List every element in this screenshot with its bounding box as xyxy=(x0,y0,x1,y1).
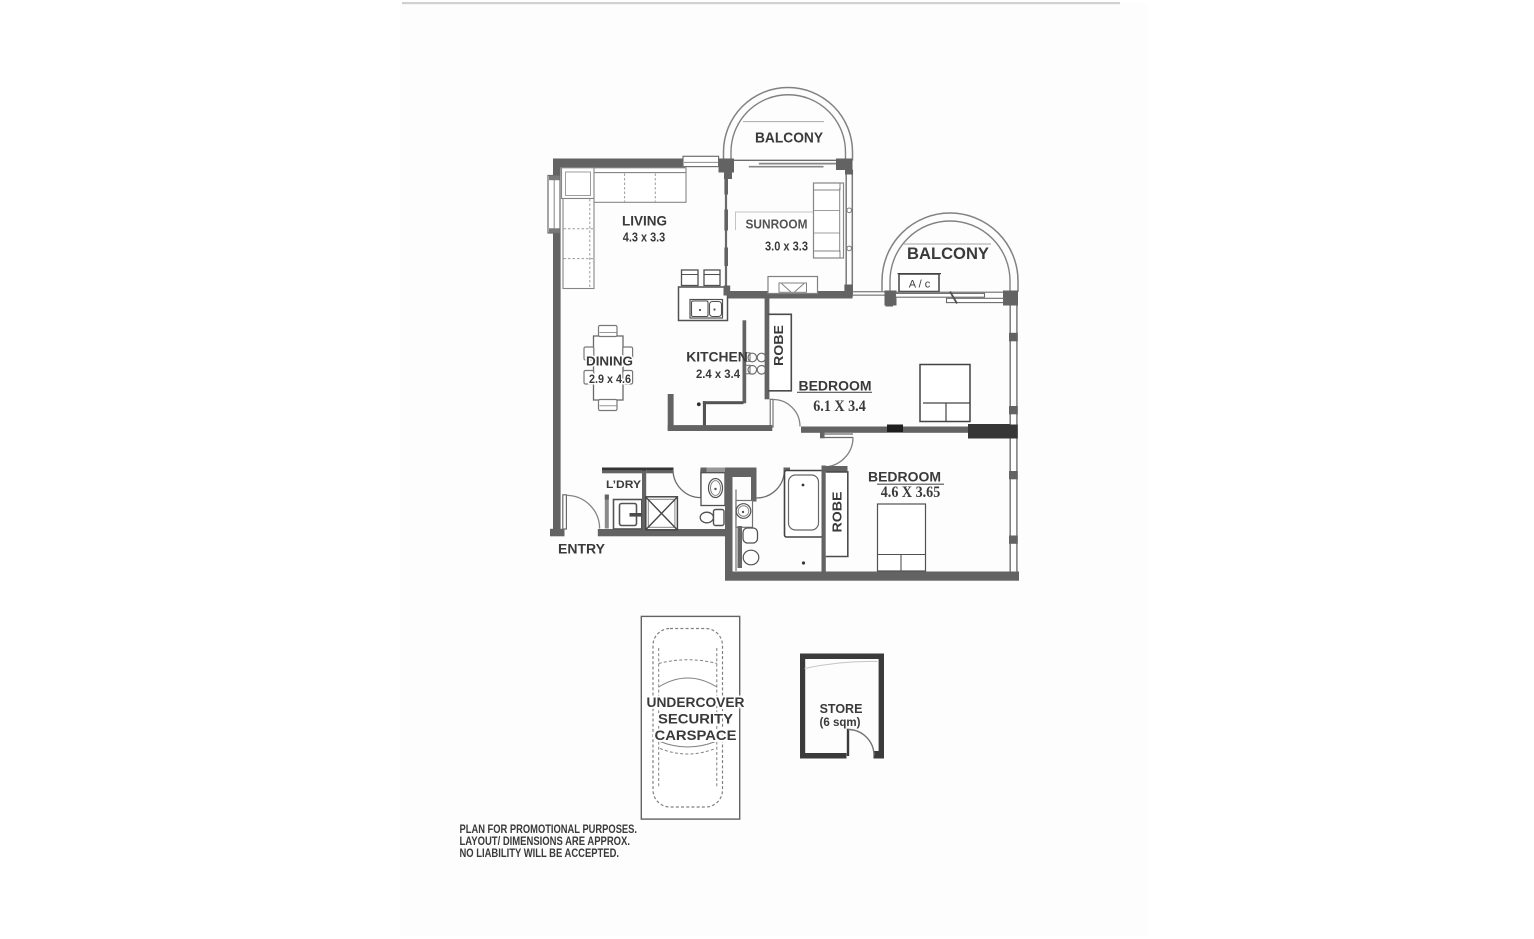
svg-text:ENTRY: ENTRY xyxy=(558,542,605,557)
svg-text:4.6 X 3.65: 4.6 X 3.65 xyxy=(881,484,941,501)
svg-text:SUNROOM: SUNROOM xyxy=(746,218,808,232)
svg-text:ROBE: ROBE xyxy=(830,491,845,532)
svg-text:ROBE: ROBE xyxy=(771,325,786,366)
svg-text:KITCHEN: KITCHEN xyxy=(686,350,748,365)
svg-text:SECURITY: SECURITY xyxy=(658,712,733,727)
svg-text:LIVING: LIVING xyxy=(622,213,667,229)
svg-text:3.0 x 3.3: 3.0 x 3.3 xyxy=(765,240,808,254)
svg-text:4.3 x 3.3: 4.3 x 3.3 xyxy=(623,230,666,244)
svg-text:BALCONY: BALCONY xyxy=(755,130,823,147)
svg-text:6.1 X 3.4: 6.1 X 3.4 xyxy=(813,398,866,415)
svg-text:CARSPACE: CARSPACE xyxy=(655,728,737,743)
svg-text:A / c: A / c xyxy=(909,279,931,291)
svg-text:BALCONY: BALCONY xyxy=(907,245,989,263)
svg-text:NO LIABILITY WILL BE ACCEPTED.: NO LIABILITY WILL BE ACCEPTED. xyxy=(460,846,620,860)
svg-text:2.9 x 4.6: 2.9 x 4.6 xyxy=(589,372,631,386)
svg-text:DINING: DINING xyxy=(586,354,633,369)
svg-text:BEDROOM: BEDROOM xyxy=(799,378,872,393)
svg-text:2.4 x 3.4: 2.4 x 3.4 xyxy=(696,367,740,381)
svg-text:BEDROOM: BEDROOM xyxy=(868,470,941,485)
svg-text:STORE: STORE xyxy=(820,702,863,716)
svg-text:UNDERCOVER: UNDERCOVER xyxy=(647,695,745,710)
svg-text:L’DRY: L’DRY xyxy=(606,479,642,491)
svg-text:(6 sqm): (6 sqm) xyxy=(820,717,861,729)
